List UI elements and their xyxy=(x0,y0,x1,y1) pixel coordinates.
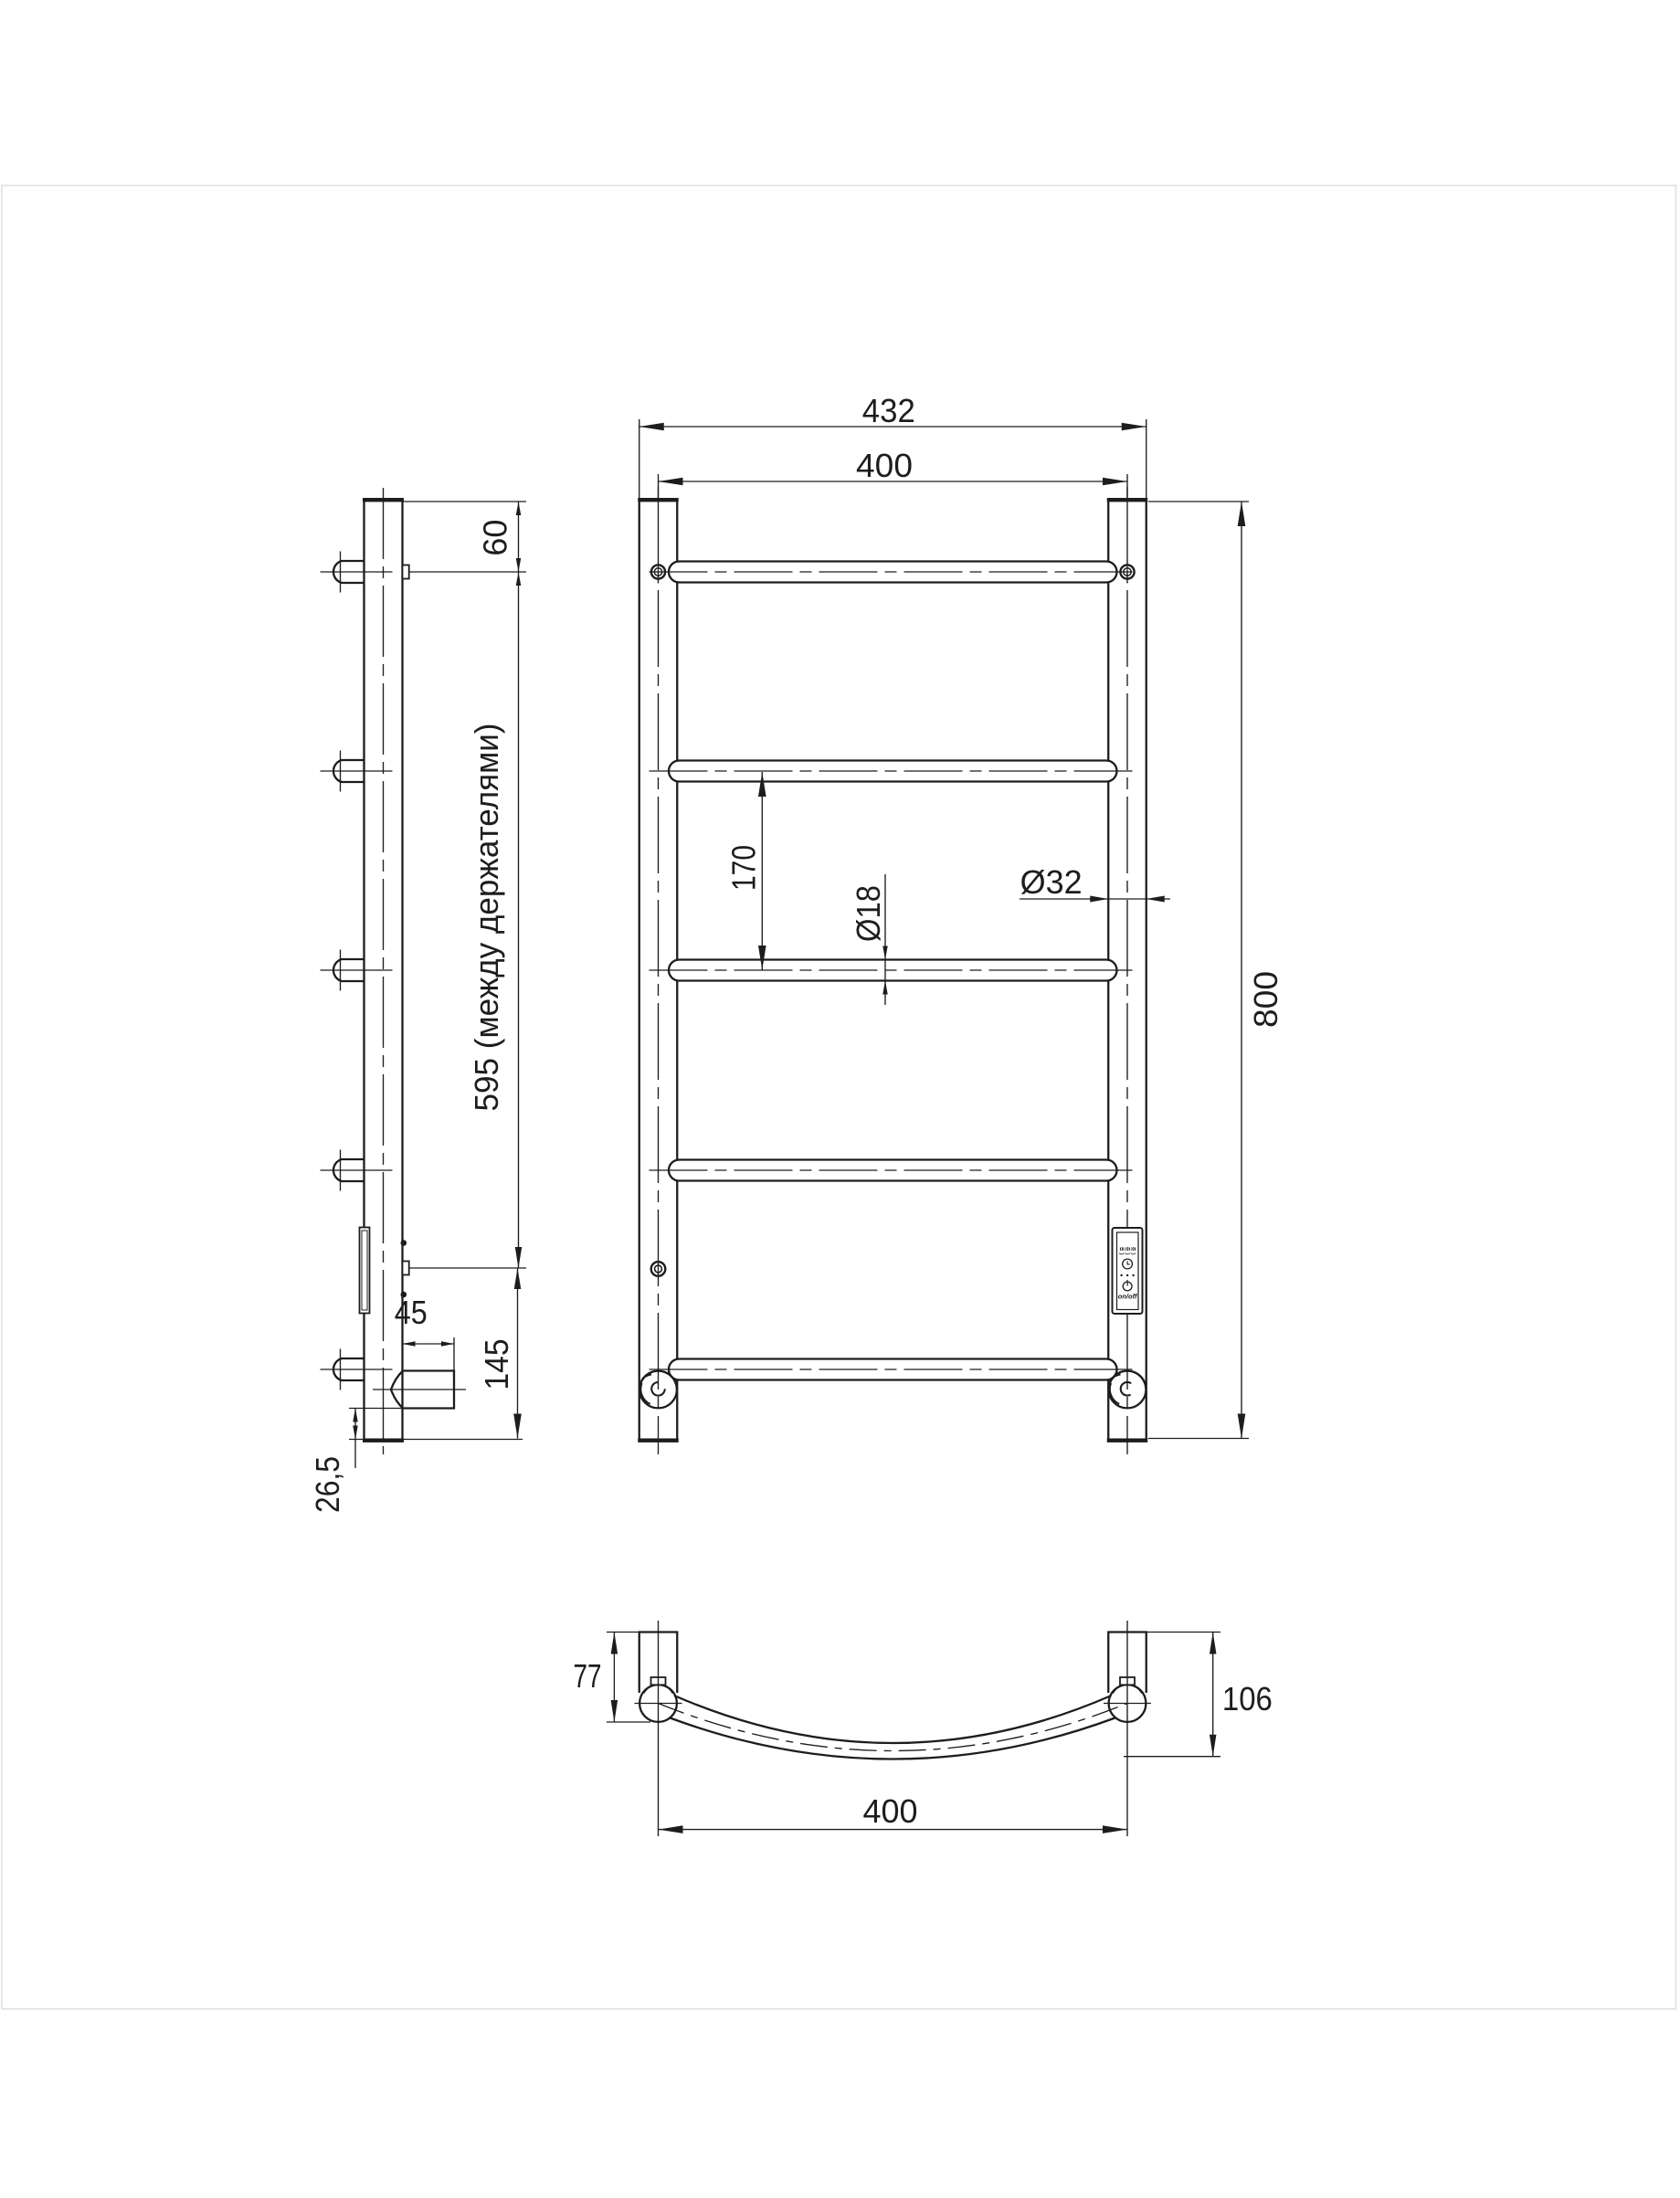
svg-text:on/off: on/off xyxy=(1118,1293,1138,1301)
svg-text:145: 145 xyxy=(478,1339,515,1390)
svg-text:432: 432 xyxy=(862,392,915,429)
svg-text:Ø32: Ø32 xyxy=(1020,863,1083,901)
svg-text:400: 400 xyxy=(856,447,913,484)
svg-text:800: 800 xyxy=(1247,971,1284,1028)
svg-text:595 (между держателями): 595 (между держателями) xyxy=(468,724,505,1112)
svg-text:60: 60 xyxy=(477,520,514,556)
svg-text:170: 170 xyxy=(725,845,763,891)
svg-text:Ø18: Ø18 xyxy=(850,885,887,942)
svg-text:77: 77 xyxy=(574,1657,602,1695)
svg-text:45: 45 xyxy=(395,1294,428,1331)
svg-text:400: 400 xyxy=(863,1792,918,1830)
svg-text:106: 106 xyxy=(1222,1680,1273,1717)
svg-text:26,5: 26,5 xyxy=(309,1456,346,1513)
